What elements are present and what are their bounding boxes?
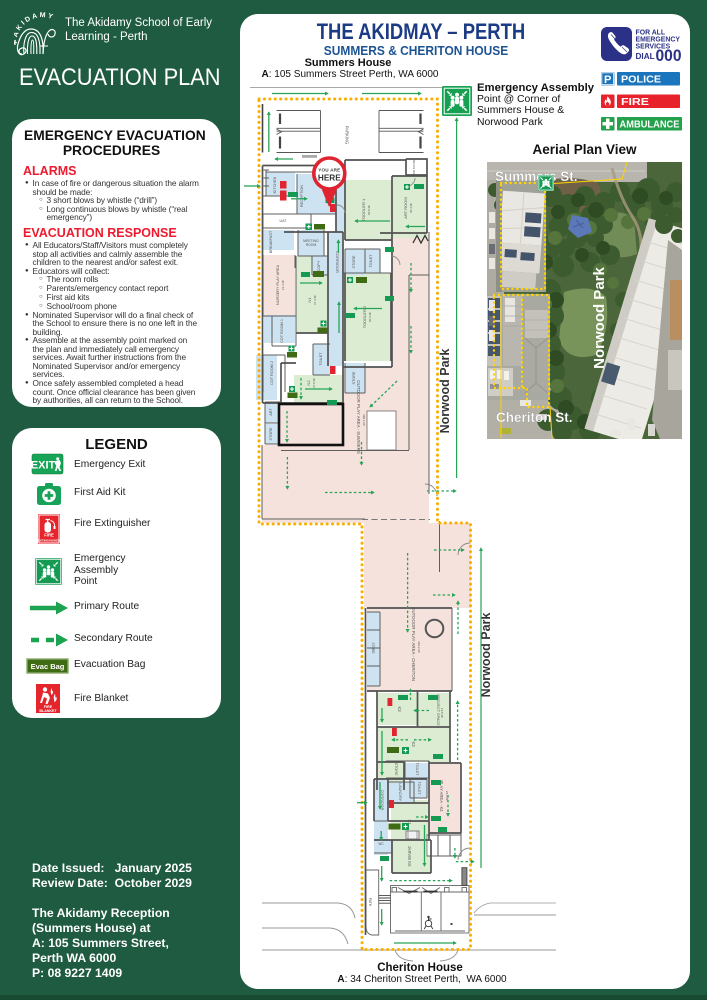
svg-text:KITCHEN: KITCHEN [273, 176, 277, 193]
svg-text:390.1 M²: 390.1 M² [362, 414, 366, 426]
svg-text:NURSERY PLAY AREA: NURSERY PLAY AREA [276, 265, 280, 305]
svg-text:OUTDOOR PLAY AREA - CHERITON: OUTDOOR PLAY AREA - CHERITON [411, 607, 416, 681]
svg-text:STORE: STORE [352, 371, 356, 384]
svg-text:Summers St.: Summers St. [495, 169, 578, 184]
svg-text:RECEPTION: RECEPTION [300, 185, 304, 207]
svg-text:OUTDOOR PLAY AREA - SUMMERS: OUTDOOR PLAY AREA - SUMMERS [356, 380, 361, 454]
svg-text:STORE: STORE [269, 427, 273, 440]
svg-text:21.3 M²: 21.3 M² [281, 280, 285, 290]
svg-text:TOILET: TOILET [369, 254, 373, 268]
svg-text:COT ROOM 2: COT ROOM 2 [270, 361, 274, 385]
svg-text:K3: K3 [411, 741, 416, 747]
svg-text:BIN STORE: BIN STORE [412, 159, 416, 175]
svg-text:ART ROOM: ART ROOM [403, 197, 408, 218]
svg-text:HERE: HERE [318, 174, 341, 183]
svg-text:BREAKFAST: BREAKFAST [269, 230, 273, 253]
svg-text:STORE: STORE [394, 762, 398, 775]
svg-text:COT ROOM 1: COT ROOM 1 [280, 319, 284, 343]
svg-text:310.2 M²: 310.2 M² [417, 641, 421, 653]
svg-text:TOILET: TOILET [415, 762, 419, 776]
svg-text:37.8 M²: 37.8 M² [312, 378, 316, 388]
svg-text:LAUNDRY: LAUNDRY [398, 783, 402, 802]
svg-text:Norwood Park: Norwood Park [438, 349, 452, 434]
svg-text:WC: WC [378, 842, 384, 846]
svg-text:PATH: PATH [368, 898, 372, 907]
svg-text:Cheriton St.: Cheriton St. [496, 410, 573, 425]
svg-text:CORRIDOR: CORRIDOR [335, 251, 340, 273]
svg-text:STORE: STORE [371, 643, 375, 654]
svg-text:35.4 M²: 35.4 M² [409, 203, 413, 213]
svg-text:40.8 M²: 40.8 M² [367, 205, 371, 215]
svg-text:N2: N2 [306, 380, 311, 386]
svg-text:60.6 M²: 60.6 M² [368, 312, 372, 322]
svg-text:Norwood Park: Norwood Park [591, 267, 608, 369]
svg-text:K3: K3 [397, 706, 402, 712]
svg-text:UAT: UAT [280, 219, 288, 223]
svg-text:YOU ARE: YOU ARE [318, 168, 340, 173]
svg-text:COPY: COPY [317, 260, 321, 271]
svg-text:PARKING: PARKING [345, 126, 350, 145]
svg-text:STORE: STORE [352, 255, 356, 268]
svg-text:TOILET: TOILET [417, 781, 421, 795]
svg-text:12.5 M²: 12.5 M² [440, 708, 444, 718]
svg-text:N1: N1 [307, 297, 312, 303]
svg-text:ROOM: ROOM [306, 243, 317, 247]
svg-text:TOILET: TOILET [319, 352, 323, 366]
svg-text:PLAY AREA - K4: PLAY AREA - K4 [439, 780, 444, 812]
svg-text:TODDLER 1: TODDLER 1 [361, 198, 366, 221]
svg-text:37.3 M²: 37.3 M² [313, 295, 317, 305]
svg-text:ART: ART [269, 408, 273, 416]
svg-text:JARVIE K5: JARVIE K5 [407, 846, 412, 868]
